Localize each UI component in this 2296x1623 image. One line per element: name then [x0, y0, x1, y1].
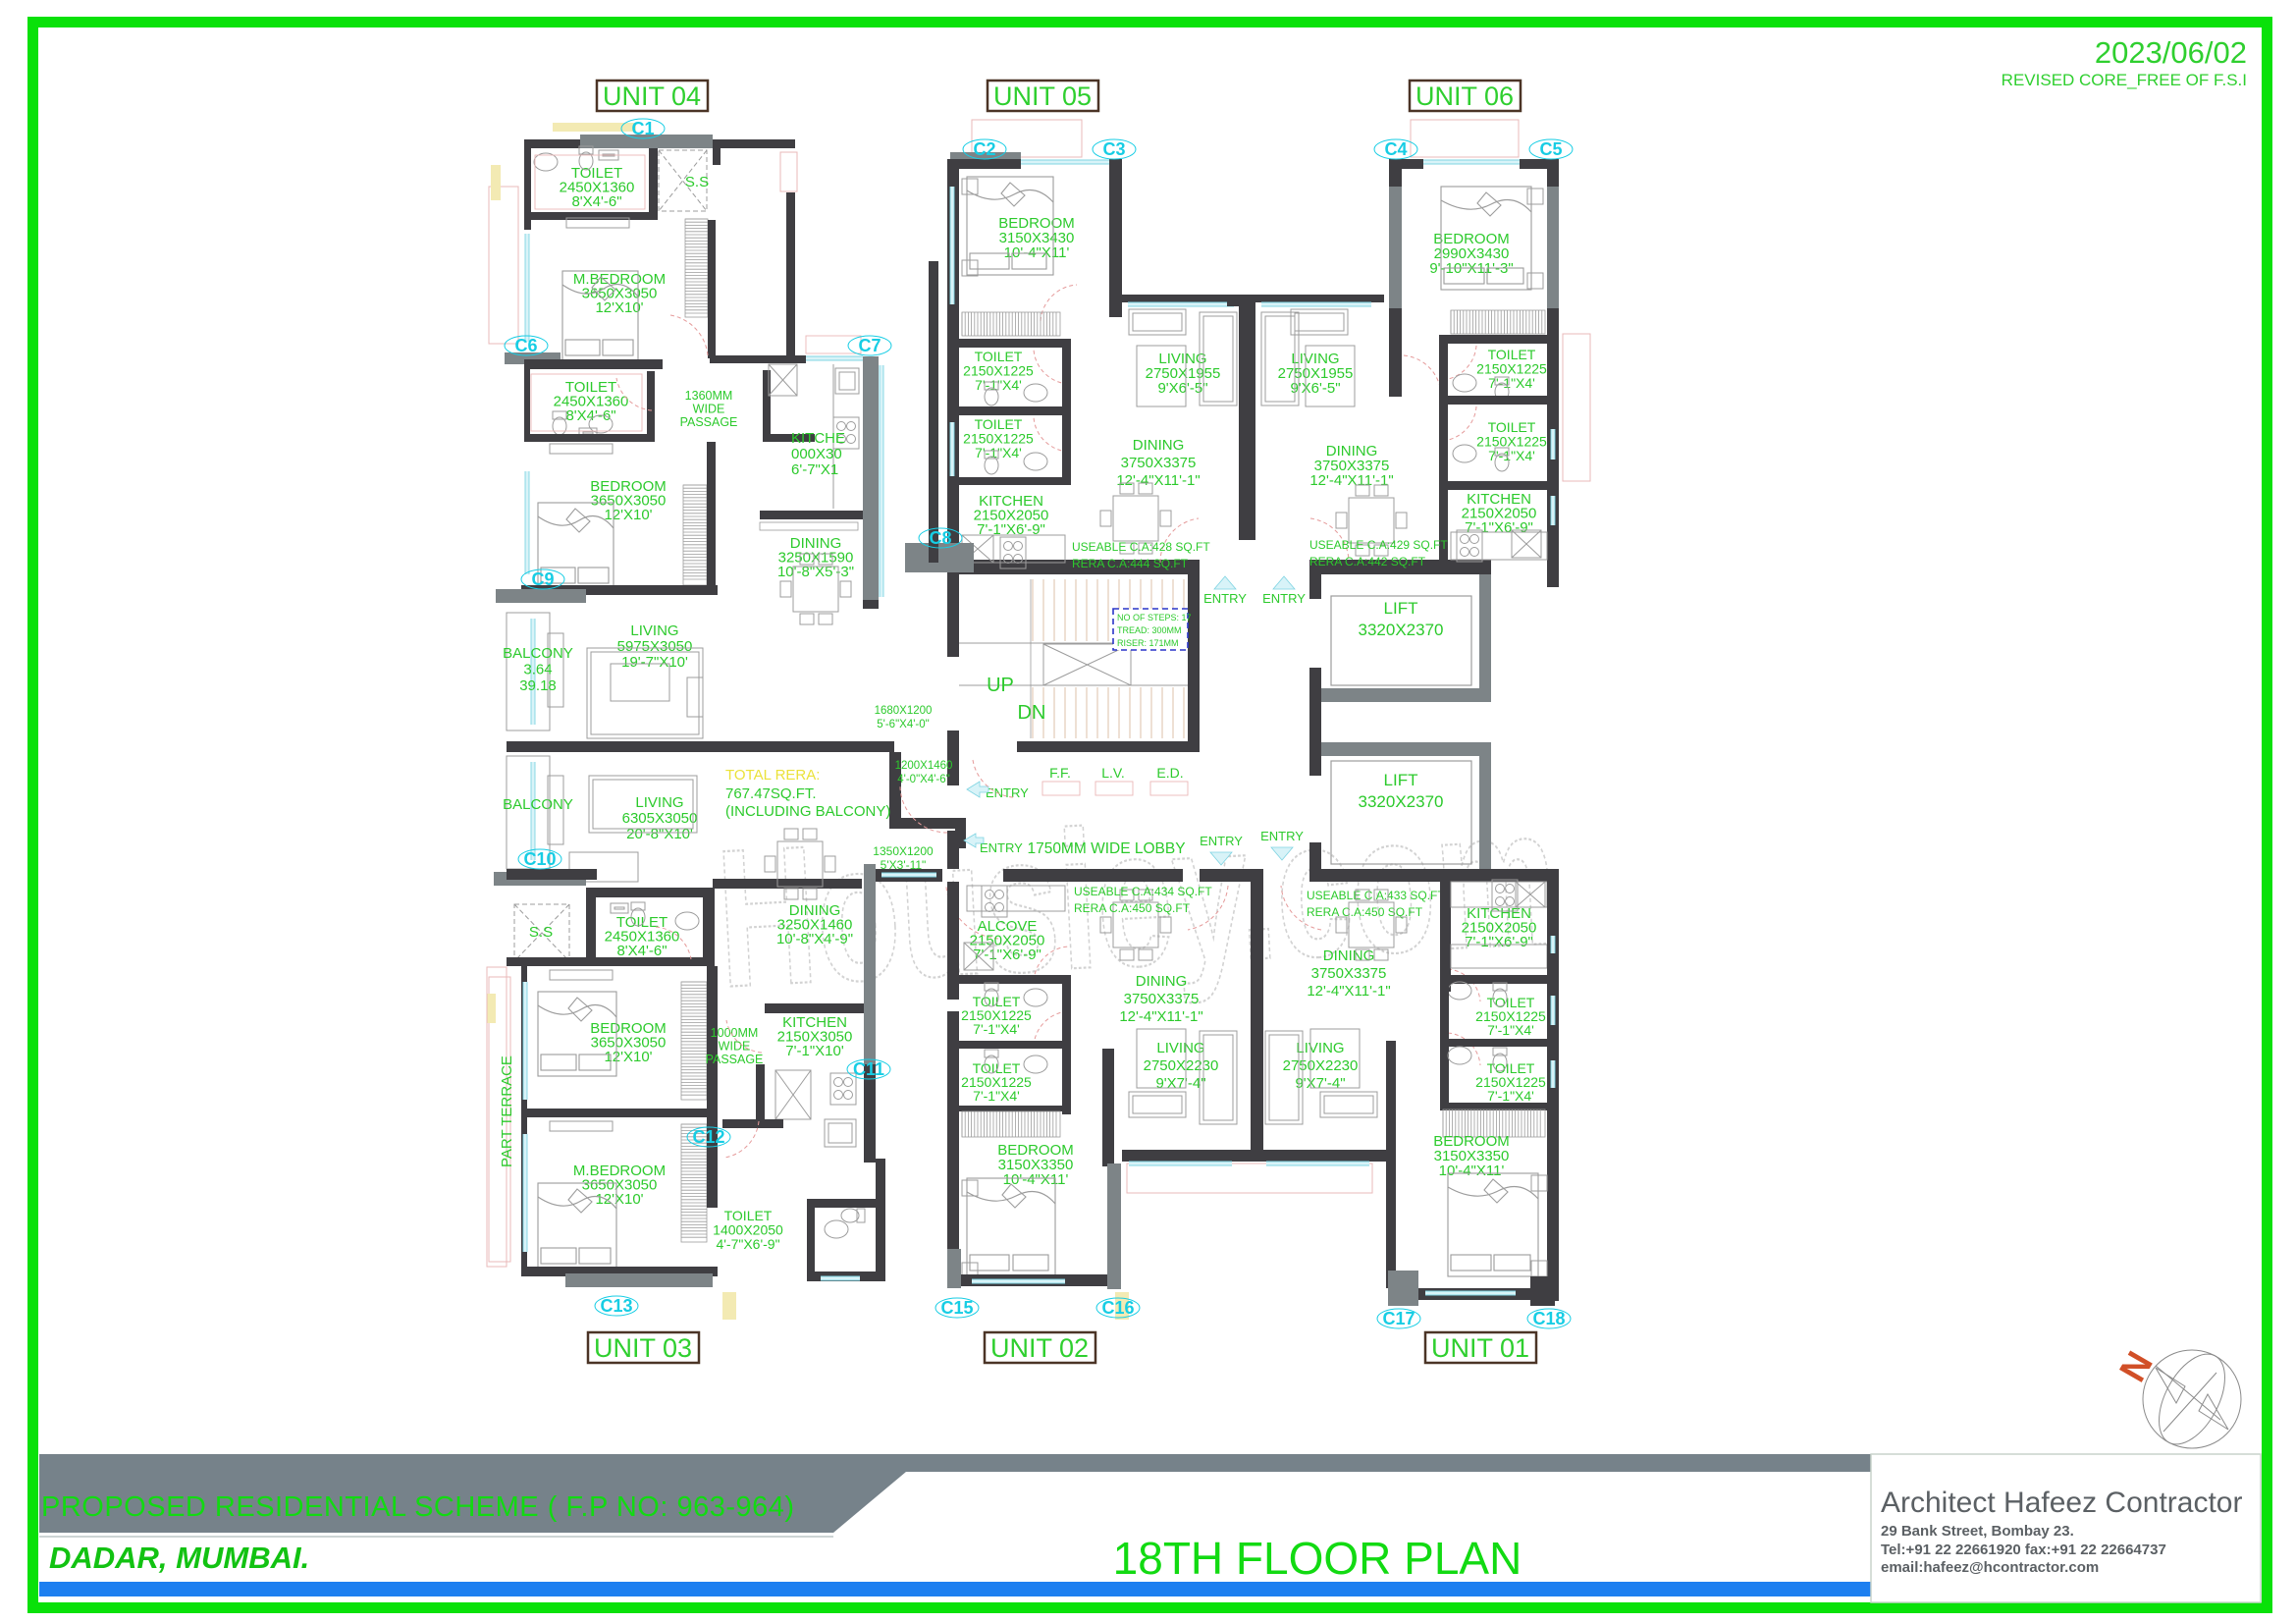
svg-text:LIFT: LIFT — [1384, 771, 1418, 789]
svg-text:F.F.: F.F. — [1049, 765, 1071, 781]
svg-text:7'-1"X4': 7'-1"X4' — [1487, 1088, 1534, 1104]
svg-text:WIDE: WIDE — [719, 1040, 751, 1054]
svg-text:3750X3375: 3750X3375 — [1311, 965, 1387, 982]
svg-text:C2: C2 — [973, 139, 995, 159]
svg-text:UNIT 01: UNIT 01 — [1431, 1333, 1529, 1363]
svg-text:TOTAL RERA:: TOTAL RERA: — [725, 767, 820, 784]
svg-text:L.V.: L.V. — [1101, 765, 1125, 781]
svg-text:LIVING: LIVING — [635, 794, 683, 811]
svg-text:12'X10': 12'X10' — [595, 1191, 643, 1208]
svg-text:C4: C4 — [1384, 139, 1407, 159]
svg-text:UP: UP — [987, 675, 1014, 696]
svg-text:C9: C9 — [531, 569, 554, 589]
svg-text:ENTRY: ENTRY — [1260, 829, 1304, 843]
svg-text:C7: C7 — [858, 336, 881, 355]
svg-text:RERA C.A:442 SQ.FT: RERA C.A:442 SQ.FT — [1309, 555, 1426, 568]
svg-text:LIFT: LIFT — [1384, 599, 1418, 618]
svg-text:2750X2230: 2750X2230 — [1283, 1057, 1359, 1074]
svg-text:12'-4"X11'-1": 12'-4"X11'-1" — [1307, 983, 1390, 1000]
svg-text:12'-4"X11'-1": 12'-4"X11'-1" — [1119, 1008, 1202, 1025]
svg-text:DINING: DINING — [1133, 437, 1185, 454]
svg-text:4'-0"X4'-6": 4'-0"X4'-6" — [897, 774, 949, 785]
svg-text:RERA C.A:450 SQ.FT: RERA C.A:450 SQ.FT — [1074, 901, 1191, 915]
svg-text:7'-1"X4': 7'-1"X4' — [973, 1021, 1020, 1037]
svg-text:12'-4"X11'-1": 12'-4"X11'-1" — [1116, 472, 1200, 489]
svg-text:12'X10': 12'X10' — [604, 507, 652, 523]
svg-text:USEABLE C.A:428 SQ.FT: USEABLE C.A:428 SQ.FT — [1072, 540, 1210, 554]
svg-text:8'X4'-6": 8'X4'-6" — [565, 407, 615, 424]
svg-text:1350X1200: 1350X1200 — [873, 844, 934, 858]
svg-text:REVISED CORE_FREE OF F.S.I: REVISED CORE_FREE OF F.S.I — [2002, 71, 2247, 89]
svg-text:29 Bank Street, Bombay 23.: 29 Bank Street, Bombay 23. — [1881, 1523, 2074, 1540]
svg-text:6'-7"X1: 6'-7"X1 — [791, 461, 838, 478]
svg-text:KITCHE: KITCHE — [791, 430, 845, 447]
svg-text:5'-6"X4'-0": 5'-6"X4'-0" — [877, 719, 929, 730]
svg-text:1680X1200: 1680X1200 — [875, 705, 933, 717]
svg-text:8'X4'-6": 8'X4'-6" — [616, 943, 667, 959]
svg-text:10'-4"X11': 10'-4"X11' — [1439, 1163, 1505, 1179]
svg-text:UNIT 03: UNIT 03 — [594, 1333, 692, 1363]
svg-text:TREAD: 300MM: TREAD: 300MM — [1117, 625, 1182, 635]
svg-text:C16: C16 — [1101, 1298, 1134, 1318]
svg-text:1000MM: 1000MM — [711, 1026, 759, 1040]
svg-text:LIVING: LIVING — [1156, 1040, 1204, 1056]
svg-text:NO OF STEPS: 17: NO OF STEPS: 17 — [1117, 613, 1192, 622]
svg-text:ENTRY: ENTRY — [1203, 591, 1247, 606]
svg-text:767.47SQ.FT.: 767.47SQ.FT. — [725, 785, 817, 802]
svg-text:(INCLUDING BALCONY): (INCLUDING BALCONY) — [725, 803, 890, 820]
svg-text:C11: C11 — [853, 1059, 884, 1079]
svg-text:C15: C15 — [940, 1298, 973, 1318]
svg-text:1200X1460: 1200X1460 — [895, 760, 953, 772]
svg-text:Architect Hafeez Contractor: Architect Hafeez Contractor — [1881, 1487, 2242, 1519]
svg-text:S.S: S.S — [685, 174, 709, 190]
svg-text:6305X3050: 6305X3050 — [622, 810, 698, 827]
svg-text:WIDE: WIDE — [693, 403, 725, 416]
svg-text:ENTRY: ENTRY — [1262, 591, 1306, 606]
svg-text:000X30: 000X30 — [791, 446, 842, 462]
svg-text:E.D.: E.D. — [1156, 765, 1183, 781]
svg-text:C6: C6 — [514, 336, 537, 355]
svg-text:C13: C13 — [600, 1296, 632, 1316]
svg-text:USEABLE C.A:429 SQ.FT: USEABLE C.A:429 SQ.FT — [1309, 538, 1448, 552]
svg-text:C8: C8 — [929, 528, 951, 548]
svg-text:4'-7"X6'-9": 4'-7"X6'-9" — [716, 1236, 779, 1252]
svg-text:DADAR, MUMBAI.: DADAR, MUMBAI. — [49, 1541, 309, 1575]
svg-text:2750X2230: 2750X2230 — [1144, 1057, 1219, 1074]
svg-text:C3: C3 — [1102, 139, 1125, 159]
svg-text:BALCONY: BALCONY — [503, 645, 573, 662]
svg-text:C18: C18 — [1532, 1309, 1565, 1328]
svg-text:C10: C10 — [523, 849, 556, 869]
svg-text:7'-1"X10': 7'-1"X10' — [785, 1043, 844, 1059]
svg-text:12'-4"X11'-1": 12'-4"X11'-1" — [1309, 472, 1393, 489]
svg-text:19'-7"X10': 19'-7"X10' — [621, 654, 688, 671]
svg-text:UNIT 02: UNIT 02 — [990, 1333, 1089, 1363]
svg-text:C17: C17 — [1382, 1309, 1415, 1328]
svg-text:RERA C.A:444 SQ.FT: RERA C.A:444 SQ.FT — [1072, 557, 1189, 570]
svg-text:email:hafeez@hcontractor.com: email:hafeez@hcontractor.com — [1881, 1559, 2099, 1576]
svg-text:ENTRY: ENTRY — [980, 840, 1023, 855]
svg-text:7'-1"X6'-9": 7'-1"X6'-9" — [1465, 934, 1533, 950]
svg-text:10'-8"X4'-9": 10'-8"X4'-9" — [776, 931, 853, 947]
svg-text:UNIT 06: UNIT 06 — [1415, 81, 1514, 111]
svg-text:8'X4'-6": 8'X4'-6" — [571, 193, 621, 210]
svg-text:39.18: 39.18 — [519, 677, 557, 694]
svg-text:C12: C12 — [692, 1127, 724, 1147]
svg-text:9'X6'-5": 9'X6'-5" — [1290, 380, 1340, 397]
svg-text:3750X3375: 3750X3375 — [1121, 455, 1197, 471]
svg-text:DN: DN — [1018, 702, 1046, 724]
svg-text:1750MM WIDE LOBBY: 1750MM WIDE LOBBY — [1027, 840, 1185, 857]
svg-text:USEABLE C.A:434 SQ.FT: USEABLE C.A:434 SQ.FT — [1074, 885, 1212, 898]
svg-text:12'X10': 12'X10' — [595, 299, 643, 316]
svg-text:18TH FLOOR PLAN: 18TH FLOOR PLAN — [1113, 1533, 1522, 1584]
svg-text:UNIT 04: UNIT 04 — [603, 81, 701, 111]
svg-text:BALCONY: BALCONY — [503, 796, 573, 813]
svg-text:3320X2370: 3320X2370 — [1359, 621, 1444, 639]
svg-text:DINING: DINING — [1136, 973, 1188, 990]
svg-text:3320X2370: 3320X2370 — [1359, 792, 1444, 811]
svg-text:LIVING: LIVING — [1296, 1040, 1344, 1056]
svg-text:9'X7'-4": 9'X7'-4" — [1155, 1075, 1205, 1092]
svg-text:LIVING: LIVING — [630, 622, 678, 639]
svg-text:7'-1"X4': 7'-1"X4' — [1487, 1022, 1534, 1038]
svg-text:DINING: DINING — [1323, 947, 1375, 964]
svg-text:3.64: 3.64 — [523, 662, 552, 678]
svg-text:9'X6'-5": 9'X6'-5" — [1157, 380, 1207, 397]
svg-text:3750X3375: 3750X3375 — [1124, 991, 1200, 1007]
svg-text:ENTRY: ENTRY — [986, 785, 1029, 800]
svg-text:12'X10': 12'X10' — [604, 1049, 652, 1065]
svg-text:S.S: S.S — [529, 924, 553, 941]
svg-text:7'-1"X4': 7'-1"X4' — [973, 1088, 1020, 1104]
svg-text:7'-1"X6'-9": 7'-1"X6'-9" — [1465, 519, 1533, 536]
svg-text:RISER: 171MM: RISER: 171MM — [1117, 638, 1179, 648]
svg-text:PASSAGE: PASSAGE — [680, 415, 738, 429]
svg-text:Tel:+91 22 22661920 fax:+91 22: Tel:+91 22 22661920 fax:+91 22 22664737 — [1881, 1542, 2166, 1558]
svg-text:UNIT 05: UNIT 05 — [993, 81, 1092, 111]
svg-text:1360MM: 1360MM — [685, 389, 733, 403]
svg-text:PROPOSED RESIDENTIAL SCHEME (: PROPOSED RESIDENTIAL SCHEME ( F.P NO: 96… — [41, 1491, 795, 1523]
svg-text:PART TERRACE: PART TERRACE — [499, 1055, 515, 1167]
svg-text:2023/06/02: 2023/06/02 — [2095, 35, 2247, 70]
svg-text:PASSAGE: PASSAGE — [706, 1053, 764, 1066]
svg-text:C5: C5 — [1539, 139, 1562, 159]
svg-text:C1: C1 — [631, 119, 654, 138]
svg-text:ENTRY: ENTRY — [1200, 834, 1243, 848]
